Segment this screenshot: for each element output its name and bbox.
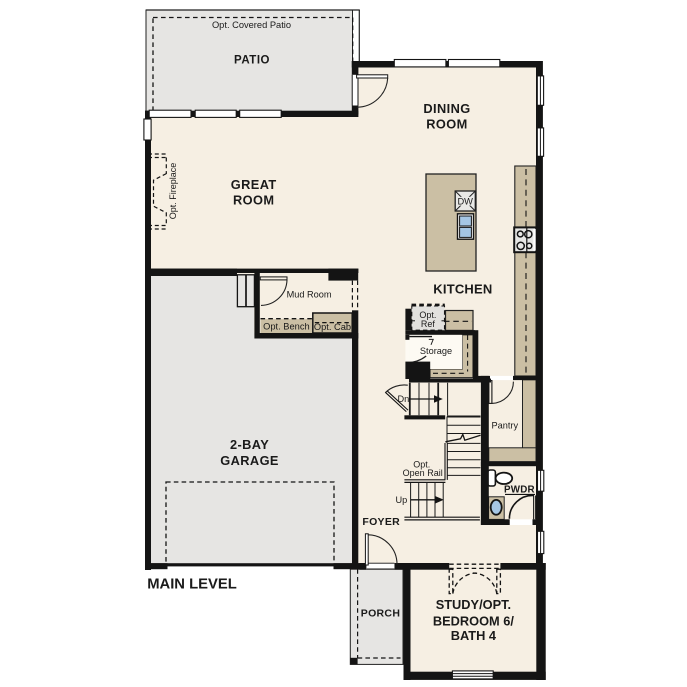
svg-text:Opt. Cab: Opt. Cab: [314, 322, 351, 332]
svg-text:STUDY/OPT.: STUDY/OPT.: [436, 597, 511, 612]
svg-text:BEDROOM 6/: BEDROOM 6/: [433, 613, 514, 628]
svg-text:MAIN LEVEL: MAIN LEVEL: [147, 576, 237, 592]
svg-text:GREAT: GREAT: [231, 177, 277, 192]
svg-text:Opt. Bench: Opt. Bench: [263, 321, 310, 331]
svg-text:Pantry: Pantry: [492, 421, 519, 431]
svg-text:Opt. Covered Patio: Opt. Covered Patio: [212, 20, 291, 30]
svg-text:PORCH: PORCH: [361, 608, 400, 620]
svg-text:Open Rail: Open Rail: [403, 468, 443, 478]
svg-text:ROOM: ROOM: [233, 193, 274, 208]
svg-text:Opt. Fireplace: Opt. Fireplace: [168, 163, 178, 220]
svg-text:Ref: Ref: [421, 319, 436, 329]
svg-text:DINING: DINING: [423, 101, 470, 116]
svg-text:GARAGE: GARAGE: [220, 453, 279, 468]
svg-text:2-BAY: 2-BAY: [230, 437, 269, 452]
svg-text:ROOM: ROOM: [426, 117, 467, 132]
svg-text:FOYER: FOYER: [362, 516, 400, 528]
svg-text:KITCHEN: KITCHEN: [433, 282, 492, 297]
svg-text:Up: Up: [396, 495, 408, 505]
svg-text:DW: DW: [457, 196, 473, 206]
svg-text:Mud Room: Mud Room: [287, 290, 332, 300]
svg-text:PATIO: PATIO: [234, 54, 270, 66]
svg-text:Storage: Storage: [420, 346, 452, 356]
svg-text:BATH 4: BATH 4: [451, 628, 497, 643]
